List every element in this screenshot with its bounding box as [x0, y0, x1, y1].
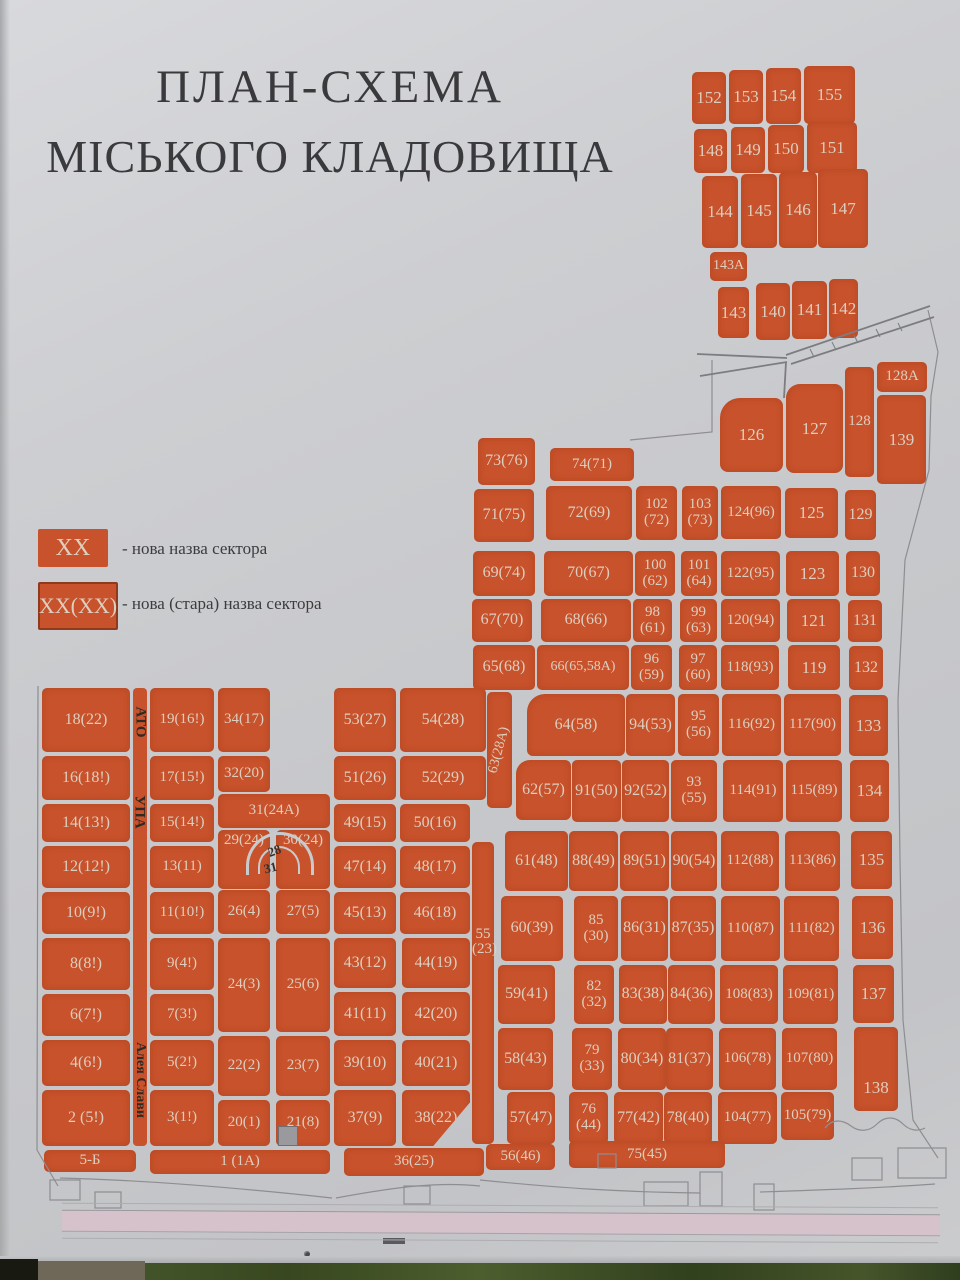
- sector-label: 126: [739, 426, 765, 444]
- sector-115(89): 115(89): [786, 760, 842, 822]
- sector-50(16): 50(16): [400, 804, 470, 842]
- sector-59(41): 59(41): [498, 965, 555, 1024]
- sector-label: 106(78): [724, 1051, 772, 1067]
- sector-34(17): 34(17): [218, 688, 270, 752]
- board-left-shadow: [0, 0, 10, 1262]
- sector-62(57): 62(57): [516, 760, 571, 820]
- sector-label: 94(53): [629, 717, 672, 734]
- sector-label: 130: [851, 565, 875, 582]
- sector-label: 141: [797, 301, 823, 319]
- sector-label: 58(43): [504, 1051, 547, 1068]
- sector-label: 79 (33): [580, 1043, 605, 1075]
- sector-112(88): 112(88): [721, 831, 779, 891]
- sector-87(35): 87(35): [670, 896, 716, 961]
- sector-label: 103 (73): [688, 497, 713, 529]
- sector-100(62): 100 (62): [635, 551, 675, 596]
- sector-label: 140: [760, 303, 786, 321]
- sector-label: 127: [802, 420, 828, 438]
- sector-136: 136: [852, 896, 893, 959]
- sector-label: 119: [802, 659, 827, 677]
- sector-67(70): 67(70): [472, 599, 532, 642]
- sector-127: 127: [786, 384, 843, 473]
- sector-49(15): 49(15): [334, 804, 396, 842]
- sector-64(58): 64(58): [527, 694, 625, 756]
- sector-label: 154: [771, 87, 797, 105]
- sector-118(93): 118(93): [721, 645, 779, 690]
- sector-label: 138: [854, 1079, 898, 1097]
- sector-label: 132: [854, 660, 878, 677]
- sector-54(28): 54(28): [400, 688, 486, 752]
- sector-83(38): 83(38): [619, 965, 667, 1024]
- sector-label: 46(18): [414, 905, 457, 922]
- sector-label: 77(42): [617, 1110, 660, 1127]
- sector-label: 109(81): [787, 987, 835, 1003]
- sector-label: 67(70): [481, 612, 524, 629]
- sector-label: 108(83): [725, 987, 773, 1003]
- sector-25(6): 25(6): [276, 938, 330, 1032]
- sector-label: 82 (32): [582, 979, 607, 1011]
- sector-119: 119: [788, 645, 840, 690]
- sector-label: 17(15!): [160, 770, 205, 786]
- sector-label: 42(20): [415, 1006, 458, 1023]
- sector-label: 49(15): [344, 815, 387, 832]
- sector-101(64): 101 (64): [681, 551, 717, 596]
- sector-label: 113(86): [789, 853, 836, 869]
- sector-label: 134: [857, 782, 883, 800]
- sector-58(43): 58(43): [498, 1028, 553, 1090]
- sector-label: 2 (5!): [68, 1110, 104, 1127]
- sector-label: 48(17): [414, 859, 457, 876]
- sector-label: 74(71): [572, 457, 612, 473]
- sector-135: 135: [851, 831, 892, 889]
- page-title: ПЛАН-СХЕМА МІСЬКОГО КЛАДОВИЩА: [20, 60, 640, 183]
- sector-82(32): 82 (32): [574, 965, 614, 1024]
- legend-swatch-new-old: XX(XX): [38, 582, 118, 630]
- sector-97(60): 97 (60): [679, 645, 717, 690]
- sector-label: 112(88): [727, 853, 774, 869]
- sector-label: 93 (55): [682, 775, 707, 807]
- sector-40(21): 40(21): [402, 1040, 470, 1086]
- sector-3(1!): 3(1!): [150, 1090, 214, 1146]
- sector-26(4): 26(4): [218, 890, 270, 934]
- sector-76(44): 76 (44): [569, 1092, 608, 1144]
- sector-label: 96 (59): [639, 652, 664, 684]
- legend-text-new: - нова назва сектора: [122, 539, 267, 559]
- sector-95(56): 95 (56): [678, 694, 719, 756]
- sector-label: 18(22): [65, 712, 108, 729]
- sector-148: 148: [694, 129, 727, 173]
- sector-91(50): 91(50): [572, 760, 621, 822]
- sector-109(81): 109(81): [783, 965, 838, 1024]
- sector-label: 128А: [885, 369, 918, 385]
- road-edge-top: [62, 1203, 938, 1209]
- sector-label: 20(1): [228, 1115, 261, 1131]
- sector-140: 140: [756, 283, 790, 340]
- sector-label: 51(26): [344, 770, 387, 787]
- sector-label: 133: [856, 717, 882, 735]
- sector-label: 105(79): [784, 1108, 832, 1124]
- sector-label: 70(67): [567, 565, 610, 582]
- sector-130: 130: [846, 551, 880, 596]
- sector-38(22): 38(22): [402, 1090, 470, 1146]
- sector-label: 121: [801, 612, 827, 630]
- sector-105(79): 105(79): [781, 1092, 834, 1140]
- sector-27(5): 27(5): [276, 890, 330, 934]
- sector-label: 12(12!): [62, 859, 110, 876]
- sector-134: 134: [850, 760, 889, 822]
- sector-113(86): 113(86): [785, 831, 840, 891]
- sector-51(26): 51(26): [334, 756, 396, 800]
- sector-65(68): 65(68): [473, 645, 535, 690]
- sector-label: 69(74): [483, 565, 526, 582]
- sector-9(4!): 9(4!): [150, 938, 214, 990]
- sector-label: 44(19): [415, 955, 458, 972]
- sector-label: 14(13!): [62, 815, 110, 832]
- sector-121: 121: [787, 599, 840, 642]
- sector-155: 155: [804, 66, 855, 124]
- sector-39(10): 39(10): [334, 1040, 396, 1086]
- sector-label: 116(92): [728, 717, 775, 733]
- sector-5-Б: 5-Б: [44, 1150, 136, 1172]
- sector-label: 81(37): [668, 1051, 711, 1068]
- sector-2 (5!): 2 (5!): [42, 1090, 130, 1146]
- sector-label: 85 (30): [584, 913, 609, 945]
- sector-102(72): 102 (72): [636, 486, 677, 540]
- sector-141: 141: [792, 281, 827, 339]
- sector-label: 107(80): [786, 1051, 834, 1067]
- sector-label: 54(28): [422, 712, 465, 729]
- sector-17(15!): 17(15!): [150, 756, 214, 800]
- sector-36(25): 36(25): [344, 1148, 484, 1176]
- sector-label: 15(14!): [160, 815, 205, 831]
- sector-153: 153: [729, 70, 763, 124]
- road-edge-bottom: [62, 1238, 938, 1244]
- sector-13(11): 13(11): [150, 846, 214, 888]
- sector-label: 13(11): [162, 859, 201, 875]
- sector-86(31): 86(31): [621, 896, 668, 961]
- sector-124(96): 124(96): [721, 486, 781, 539]
- street-label-УПА: УПА: [131, 795, 148, 829]
- sector-42(20): 42(20): [402, 992, 470, 1036]
- sector-1 (1А): 1 (1А): [150, 1150, 330, 1174]
- sector-label: 143А: [713, 259, 744, 274]
- sector-label: 26(4): [228, 904, 261, 920]
- sector-label: 114(91): [730, 783, 777, 799]
- sector-label: 84(36): [670, 986, 713, 1003]
- sector-79(33): 79 (33): [572, 1028, 612, 1090]
- sector-22(2): 22(2): [218, 1036, 270, 1096]
- sector-label: 92(52): [624, 783, 667, 800]
- sector-73(76): 73(76): [478, 438, 535, 485]
- sector-6(7!): 6(7!): [42, 994, 130, 1036]
- sector-122(95): 122(95): [721, 551, 780, 596]
- sector-label: 153: [733, 88, 759, 106]
- sector-143А: 143А: [710, 252, 747, 281]
- sector-77(42): 77(42): [614, 1092, 663, 1144]
- sector-label: 37(9): [348, 1110, 383, 1127]
- sector-label: 123: [800, 565, 826, 583]
- sector-label: 47(14): [344, 859, 387, 876]
- sector-label: 61(48): [515, 853, 558, 870]
- sector-10(9!): 10(9!): [42, 892, 130, 934]
- sector-label: 10(9!): [66, 905, 106, 922]
- sector-133: 133: [849, 695, 888, 756]
- sector-137: 137: [853, 965, 894, 1023]
- sector-label: 115(89): [791, 783, 838, 799]
- sector-label: 118(93): [727, 660, 774, 676]
- sector-142: 142: [829, 279, 858, 338]
- sector-96(59): 96 (59): [631, 645, 672, 690]
- sector-108(83): 108(83): [720, 965, 778, 1024]
- sector-20(1): 20(1): [218, 1100, 270, 1146]
- sector-138: 138: [854, 1027, 898, 1111]
- sector-18(22): 18(22): [42, 688, 130, 752]
- sector-107(80): 107(80): [782, 1028, 837, 1090]
- sector-label: 27(5): [287, 904, 320, 920]
- sector-55(23): 55 (23): [472, 842, 494, 1144]
- sector-117(90): 117(90): [784, 694, 841, 756]
- sector-label: 145: [746, 202, 772, 220]
- sector-106(78): 106(78): [719, 1028, 776, 1090]
- sector-129: 129: [845, 490, 876, 540]
- sector-label: 34(17): [224, 712, 264, 728]
- sector-label: 111(82): [788, 921, 834, 937]
- sector-144: 144: [702, 176, 738, 248]
- sector-label: 75(45): [627, 1147, 667, 1163]
- sector-4(6!): 4(6!): [42, 1040, 130, 1086]
- sector-32(20): 32(20): [218, 756, 270, 792]
- sector-149: 149: [731, 127, 765, 173]
- sector-75(45): 75(45): [569, 1141, 725, 1168]
- sector-label: 16(18!): [62, 770, 110, 787]
- street-label-Алея Слави: Алея Слави: [132, 1042, 148, 1118]
- sector-120(94): 120(94): [721, 599, 780, 642]
- sector-label: 88(49): [572, 853, 615, 870]
- sector-23(7): 23(7): [276, 1036, 330, 1096]
- sector-label: 124(96): [727, 505, 775, 521]
- stream-line: [825, 1118, 925, 1130]
- sector-114(91): 114(91): [723, 760, 783, 822]
- sector-152: 152: [692, 72, 726, 124]
- sector-71(75): 71(75): [474, 489, 534, 542]
- sector-110(87): 110(87): [721, 896, 780, 961]
- sector-label: 71(75): [483, 507, 526, 524]
- sector-12(12!): 12(12!): [42, 846, 130, 888]
- sector-label: 55 (23): [472, 927, 494, 959]
- sector-label: 90(54): [673, 853, 716, 870]
- sector-80(34): 80(34): [618, 1028, 666, 1090]
- sector-label: 22(2): [228, 1058, 261, 1074]
- sector-label: 146: [785, 201, 811, 219]
- sector-label: 52(29): [422, 770, 465, 787]
- sector-label: 97 (60): [686, 652, 711, 684]
- sector-label: 8(8!): [70, 956, 102, 973]
- road-band: [62, 1210, 940, 1237]
- sector-128А: 128А: [877, 362, 927, 392]
- sector-label: 38(22): [415, 1110, 458, 1127]
- sector-label: 5-Б: [79, 1153, 100, 1169]
- sector-69(74): 69(74): [473, 551, 535, 596]
- sector-label: 149: [735, 141, 761, 159]
- sector-label: 19(16!): [160, 712, 205, 728]
- sector-label: 53(27): [344, 712, 387, 729]
- sector-label: 147: [830, 200, 856, 218]
- sector-label: 101 (64): [687, 558, 712, 590]
- sector-label: 117(90): [789, 717, 836, 733]
- sector-53(27): 53(27): [334, 688, 396, 752]
- sector-66(65,58А): 66(65,58А): [537, 645, 629, 690]
- sector-label: 143: [721, 304, 747, 322]
- sector-14(13!): 14(13!): [42, 804, 130, 842]
- sector-label: 73(76): [485, 453, 528, 470]
- sector-label: 11(10!): [160, 905, 204, 921]
- sector-label: 139: [889, 431, 915, 449]
- sector-15(14!): 15(14!): [150, 804, 214, 842]
- sector-label: 3(1!): [167, 1110, 197, 1126]
- sector-68(66): 68(66): [541, 599, 631, 642]
- sector-57(47): 57(47): [507, 1092, 555, 1144]
- sector-label: 31(24А): [249, 803, 300, 819]
- title-line1: ПЛАН-СХЕМА: [20, 60, 640, 114]
- sector-label: 110(87): [727, 921, 774, 937]
- sector-label: 155: [817, 86, 843, 104]
- sector-label: 23(7): [287, 1058, 320, 1074]
- sector-90(54): 90(54): [671, 831, 717, 891]
- legend-swatch-new: XX: [38, 529, 108, 567]
- sector-label: 89(51): [623, 853, 666, 870]
- sector-131: 131: [848, 600, 882, 642]
- sector-93(55): 93 (55): [671, 760, 717, 822]
- sector-label: 98 (61): [640, 605, 665, 637]
- sector-8(8!): 8(8!): [42, 938, 130, 990]
- sector-139: 139: [877, 395, 926, 484]
- sector-label: 151: [819, 139, 845, 157]
- small-building-square: [278, 1126, 298, 1146]
- sector-94(53): 94(53): [626, 694, 675, 756]
- sector-48(17): 48(17): [400, 846, 470, 888]
- sector-150: 150: [768, 125, 804, 173]
- sector-111(82): 111(82): [784, 896, 839, 961]
- legend-swatch-new-label: XX: [56, 535, 91, 562]
- sector-label: 25(6): [287, 977, 320, 993]
- sector-label: 99 (63): [686, 605, 711, 637]
- sector-label: 76 (44): [576, 1102, 601, 1134]
- sector-label: 65(68): [483, 659, 526, 676]
- sector-label: 80(34): [621, 1051, 664, 1068]
- sector-37(9): 37(9): [334, 1090, 396, 1146]
- sector-88(49): 88(49): [569, 831, 618, 891]
- sector-154: 154: [766, 68, 801, 124]
- sector-132: 132: [849, 646, 883, 690]
- sector-label: 131: [853, 613, 877, 630]
- sector-label: 41(11): [344, 1006, 386, 1023]
- sector-151: 151: [807, 122, 857, 173]
- sector-label: 137: [861, 985, 887, 1003]
- sector-126: 126: [720, 398, 783, 472]
- sector-31(24А): 31(24А): [218, 794, 330, 828]
- cemetery-plan-photo: ПЛАН-СХЕМА МІСЬКОГО КЛАДОВИЩА XX - нова …: [0, 0, 960, 1280]
- sector-label: 6(7!): [70, 1007, 102, 1024]
- sector-16(18!): 16(18!): [42, 756, 130, 800]
- sector-label: 102 (72): [644, 497, 669, 529]
- sector-45(13): 45(13): [334, 892, 396, 934]
- sector-label: 32(20): [224, 766, 264, 782]
- sector-label: 1 (1А): [220, 1154, 260, 1170]
- sector-41(11): 41(11): [334, 992, 396, 1036]
- sector-61(48): 61(48): [505, 831, 568, 891]
- sector-70(67): 70(67): [544, 551, 633, 596]
- sector-145: 145: [741, 174, 777, 248]
- sector-label: 136: [860, 919, 886, 937]
- sector-11(10!): 11(10!): [150, 892, 214, 934]
- sector-125: 125: [785, 488, 838, 538]
- sector-label: 68(66): [565, 612, 608, 629]
- sector-label: 50(16): [414, 815, 457, 832]
- sector-98(61): 98 (61): [633, 599, 672, 642]
- sector-label: 129: [849, 507, 873, 524]
- sector-74(71): 74(71): [550, 448, 634, 481]
- sector-label: 24(3): [228, 977, 261, 993]
- sector-44(19): 44(19): [402, 938, 470, 988]
- sector-78(40): 78(40): [664, 1092, 712, 1144]
- sector-label: 128: [848, 414, 871, 430]
- legend-swatch-new-old-label: XX(XX): [39, 593, 117, 619]
- sector-label: 36(25): [394, 1154, 434, 1170]
- sector-label: 91(50): [575, 783, 618, 800]
- sector-label: 5(2!): [167, 1055, 197, 1071]
- sector-5(2!): 5(2!): [150, 1040, 214, 1086]
- sector-19(16!): 19(16!): [150, 688, 214, 752]
- sector-label: 83(38): [622, 986, 665, 1003]
- sector-43(12): 43(12): [334, 938, 396, 988]
- sector-label: 104(77): [724, 1110, 772, 1126]
- title-line2: МІСЬКОГО КЛАДОВИЩА: [20, 130, 640, 183]
- sector-7(3!): 7(3!): [150, 994, 214, 1036]
- sector-103(73): 103 (73): [682, 486, 718, 540]
- sector-label: 7(3!): [167, 1007, 197, 1023]
- sector-47(14): 47(14): [334, 846, 396, 888]
- sector-52(29): 52(29): [400, 756, 486, 800]
- sector-123: 123: [786, 551, 839, 596]
- sector-label: 87(35): [672, 920, 715, 937]
- sector-label: 144: [707, 203, 733, 221]
- sector-label: 64(58): [555, 717, 598, 734]
- street-label-АТО: АТО: [132, 707, 149, 738]
- sector-label: 100 (62): [643, 558, 668, 590]
- sector-56(46): 56(46): [486, 1144, 555, 1170]
- sector-146: 146: [779, 172, 817, 248]
- sector-label: 66(65,58А): [551, 660, 616, 675]
- sector-label: 95 (56): [686, 709, 711, 741]
- sector-46(18): 46(18): [400, 892, 470, 934]
- sector-81(37): 81(37): [666, 1028, 713, 1090]
- sector-label: 62(57): [522, 782, 565, 799]
- sector-104(77): 104(77): [718, 1092, 777, 1144]
- sector-label: 40(21): [415, 1055, 458, 1072]
- sector-72(69): 72(69): [546, 486, 632, 540]
- sector-85(30): 85 (30): [574, 896, 618, 961]
- sector-label: 59(41): [505, 986, 548, 1003]
- sector-label: 150: [773, 140, 799, 158]
- sector-label: 60(39): [511, 920, 554, 937]
- sector-label: 120(94): [727, 613, 775, 629]
- sector-143: 143: [718, 287, 749, 338]
- sector-89(51): 89(51): [620, 831, 669, 891]
- sector-label: 72(69): [568, 505, 611, 522]
- sector-label: 148: [698, 142, 724, 160]
- sector-147: 147: [818, 169, 868, 248]
- sector-label: 78(40): [667, 1110, 710, 1127]
